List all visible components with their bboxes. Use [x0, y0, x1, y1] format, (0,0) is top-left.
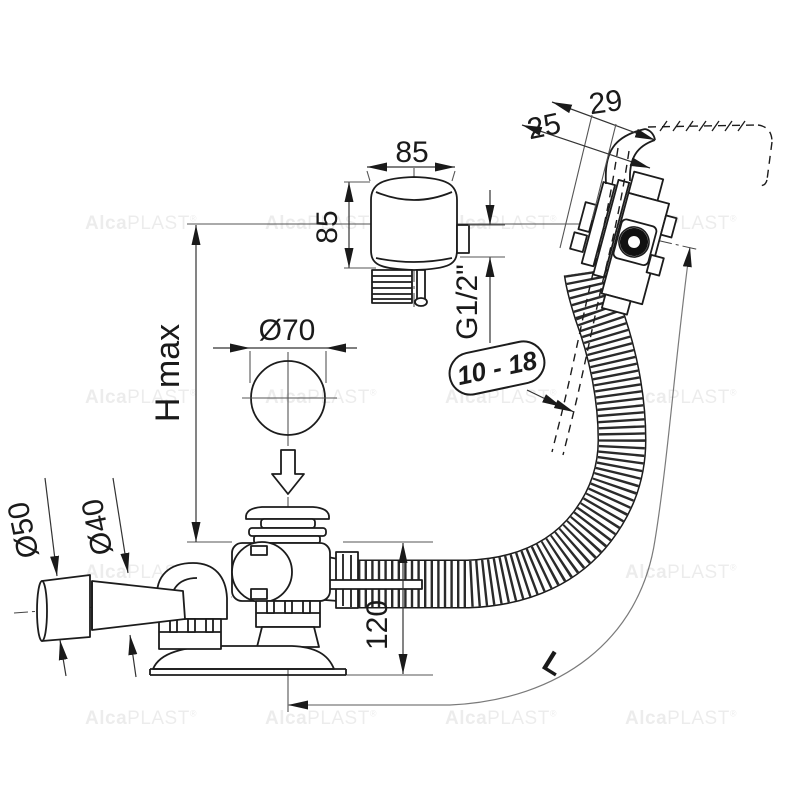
dimension-dia50: Ø50: [2, 478, 66, 676]
dim-L-label: L: [537, 645, 570, 683]
dim-85w-label: 85: [395, 136, 428, 169]
dimension-g12: G1/2": [451, 190, 505, 343]
g12-label: G1/2": [451, 264, 484, 340]
dia50-label: Ø50: [2, 499, 46, 561]
dimension-dia70: Ø70: [213, 314, 357, 383]
outlet-pipe: [37, 563, 227, 649]
drain-lock-nut: [256, 601, 320, 627]
technical-drawing-page: AlcaPLAST®AlcaPLAST®AlcaPLAST®AlcaPLAST®…: [0, 0, 800, 800]
h-max-label: H max: [149, 324, 187, 422]
pipe-50: [42, 575, 90, 641]
bathtub-rim-dashed: [648, 121, 772, 185]
callout-10-18: 10 - 18: [446, 337, 574, 412]
dimension-h-max: H max: [149, 225, 196, 542]
plug-top-view: [242, 361, 337, 494]
pull-rod: [415, 270, 427, 306]
ribbed-connector: [372, 270, 412, 303]
dim-29-label: 29: [587, 84, 625, 121]
dimension-25: 25: [522, 107, 650, 168]
elbow-lock-nut: [159, 619, 221, 649]
pipe-end-cap: [37, 581, 47, 641]
dim-120-label: 120: [361, 600, 394, 650]
bottom-flange: [150, 646, 346, 675]
thread-tab: [457, 225, 469, 253]
down-arrow-icon: [272, 450, 304, 494]
dim-85h-label: 85: [311, 210, 344, 243]
dim-25-label: 25: [524, 107, 564, 146]
dimension-85-height: 85: [311, 182, 376, 268]
drain-lower-body: [257, 627, 319, 647]
bath-drain-technical-diagram: H max 120 Ø70 85 85: [0, 0, 800, 800]
dia70-label: Ø70: [259, 314, 316, 347]
drain-plug: [246, 507, 329, 543]
dimension-85-width: 85: [367, 136, 455, 181]
dia40-label: Ø40: [76, 496, 120, 558]
